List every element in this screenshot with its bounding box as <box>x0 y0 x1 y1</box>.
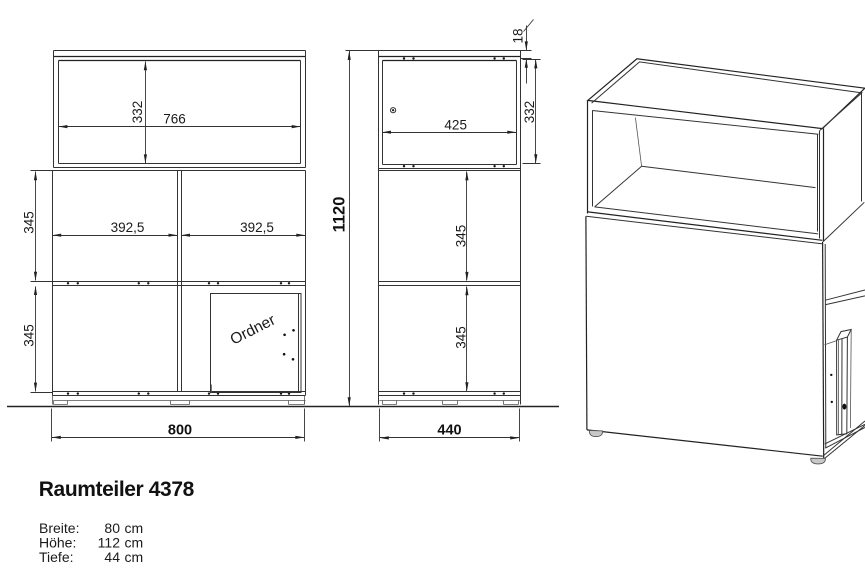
svg-text:44: 44 <box>104 549 120 565</box>
svg-text:800: 800 <box>168 423 192 439</box>
svg-text:440: 440 <box>437 423 461 439</box>
svg-text:332: 332 <box>522 101 537 124</box>
svg-text:345: 345 <box>22 211 37 234</box>
svg-text:345: 345 <box>454 225 469 248</box>
svg-text:Raumteiler 4378: Raumteiler 4378 <box>39 478 195 501</box>
svg-text:Tiefe:: Tiefe: <box>39 549 74 565</box>
svg-text:392,5: 392,5 <box>111 220 145 235</box>
svg-text:425: 425 <box>444 117 467 132</box>
svg-text:cm: cm <box>125 549 144 565</box>
svg-text:332: 332 <box>130 101 145 124</box>
svg-text:1120: 1120 <box>331 197 349 233</box>
svg-text:345: 345 <box>454 326 469 349</box>
svg-text:392,5: 392,5 <box>240 220 274 235</box>
svg-text:345: 345 <box>22 324 37 347</box>
svg-text:766: 766 <box>163 112 186 127</box>
svg-text:18: 18 <box>511 28 526 43</box>
